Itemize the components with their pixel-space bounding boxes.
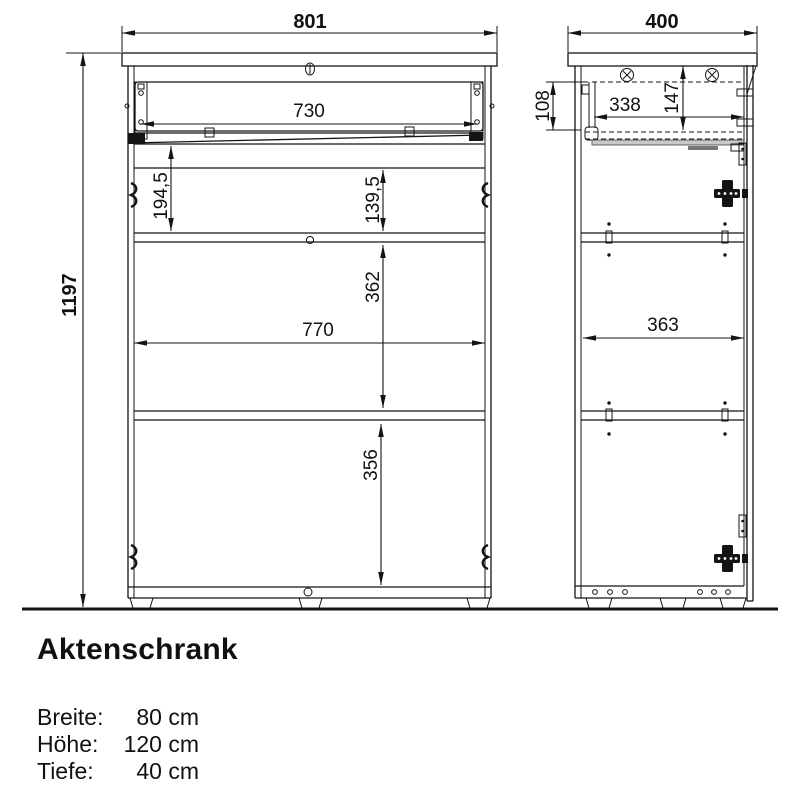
dim-drawer-front-height: 108 — [533, 82, 588, 130]
foot — [586, 598, 612, 608]
spec-value: 80 cm — [119, 704, 199, 731]
hinge-plate — [737, 89, 753, 165]
drawer-corner-left — [128, 133, 145, 144]
drawer-corner-right — [469, 132, 483, 141]
foot — [130, 598, 153, 608]
spec-label: Höhe: — [37, 731, 119, 758]
dim-label-drawer-front-height: 108 — [533, 90, 554, 122]
spec-row-breite: Breite: 80 cm — [37, 704, 199, 731]
product-title: Aktenschrank — [37, 633, 238, 667]
dim-top-compartment: 139,5 — [363, 170, 384, 231]
spec-row-hoehe: Höhe: 120 cm — [37, 731, 199, 758]
keyhole-icon — [306, 63, 315, 75]
dim-label-interior-depth: 363 — [647, 315, 679, 336]
screw-icon — [621, 69, 634, 82]
screw-icon — [706, 69, 719, 82]
door-panel — [747, 65, 756, 601]
dim-label-drawer-compartment-height: 147 — [662, 82, 683, 114]
dim-label-middle-compartment: 362 — [363, 271, 384, 303]
dim-label-drawer-section: 194,5 — [151, 172, 172, 220]
dim-interior-width: 770 — [134, 320, 485, 343]
hinge-icon — [714, 545, 748, 572]
dim-label-interior-width: 770 — [302, 320, 334, 341]
open-drawer: 730 — [125, 63, 494, 144]
dim-overall-height: 1197 — [59, 53, 121, 607]
spec-value: 40 cm — [119, 758, 199, 785]
bottom-hole — [304, 588, 312, 596]
dim-label-drawer-width: 730 — [293, 101, 325, 122]
drawer-slide-rail — [592, 140, 744, 145]
dim-label-overall-depth: 400 — [645, 11, 678, 33]
spec-row-tiefe: Tiefe: 40 cm — [37, 758, 199, 785]
dimension-drawing: 801 1197 — [0, 0, 800, 800]
dim-bottom-compartment: 356 — [361, 424, 382, 585]
foot — [660, 598, 686, 608]
technical-drawing-page: 801 1197 — [0, 0, 800, 800]
dim-label-bottom-compartment: 356 — [361, 449, 382, 481]
dim-overall-depth: 400 — [568, 11, 757, 52]
foot — [299, 598, 322, 608]
dim-drawer-compartment-height: 147 — [662, 66, 683, 130]
front-view: 801 1197 — [59, 11, 497, 608]
spec-label: Breite: — [37, 704, 119, 731]
dim-drawer-section: 194,5 — [151, 146, 172, 231]
dim-label-overall-width: 801 — [293, 11, 326, 33]
dim-drawer-width: 730 — [141, 101, 477, 124]
dim-overall-width: 801 — [122, 11, 497, 52]
dim-label-overall-height: 1197 — [59, 273, 81, 316]
dim-label-top-compartment: 139,5 — [363, 176, 384, 224]
spec-value: 120 cm — [119, 731, 199, 758]
dim-label-drawer-depth: 338 — [609, 95, 641, 116]
product-specs: Breite: 80 cm Höhe: 120 cm Tiefe: 40 cm — [37, 704, 199, 785]
side-view: 400 — [533, 11, 757, 608]
hinge-plate — [739, 515, 746, 537]
spec-label: Tiefe: — [37, 758, 119, 785]
foot — [720, 598, 746, 608]
hinge-icon — [714, 180, 748, 207]
top-panel-side — [568, 53, 757, 66]
wall-bracket — [582, 85, 589, 94]
drawer-slide-part — [688, 146, 718, 150]
dim-interior-depth: 363 — [583, 315, 744, 338]
foot — [467, 598, 490, 608]
dim-middle-compartment: 362 — [363, 245, 384, 408]
